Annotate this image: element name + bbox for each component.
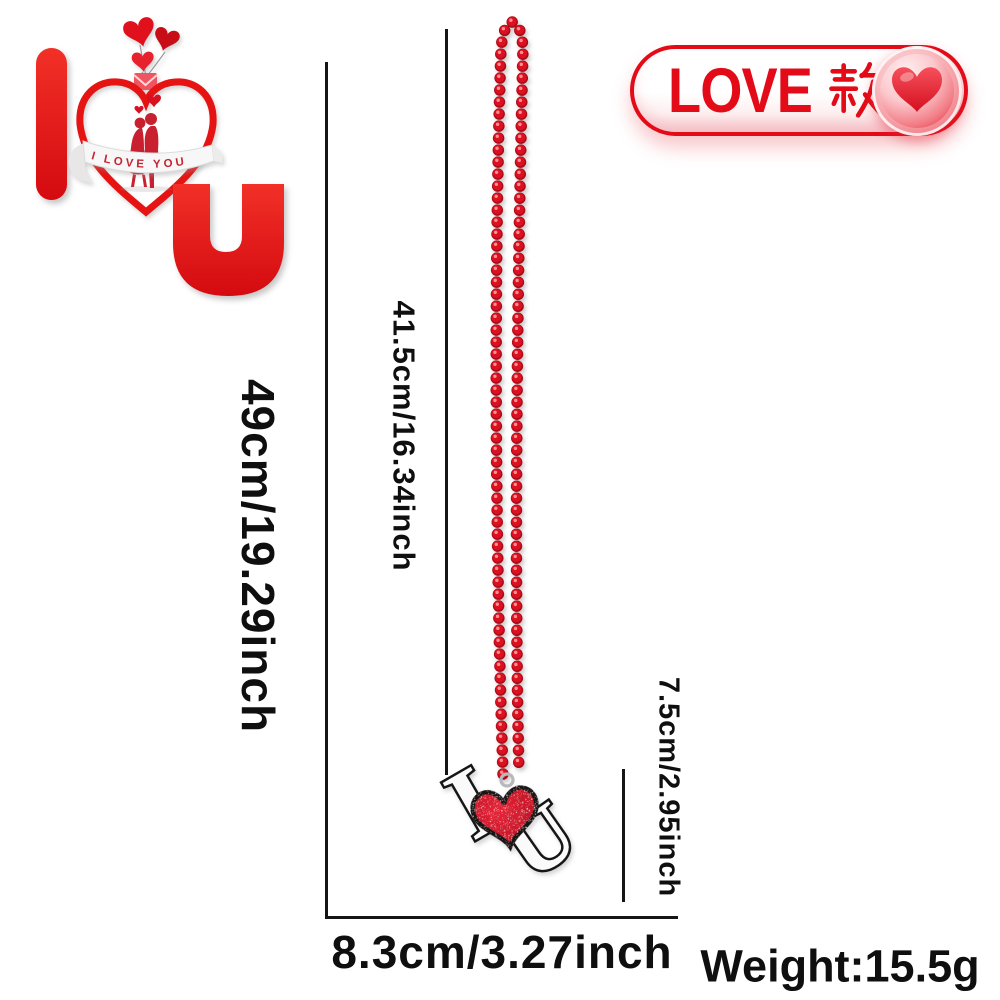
pendant-width-label: 8.3cm/3.27inch: [331, 929, 672, 975]
badge-label-latin: LOVE: [668, 55, 812, 127]
dimension-line-pendant-width: [325, 916, 678, 919]
weight-label: Weight:15.5g: [700, 944, 979, 989]
style-badge: LOVE 款 LOVE款: [630, 45, 968, 136]
badge-label: LOVE 款 LOVE款: [668, 49, 886, 132]
necklace: I U: [0, 0, 1000, 1000]
chain-drop-label: 41.5cm/16.34inch: [389, 300, 420, 571]
pendant-height-label: 7.5cm/2.95inch: [654, 677, 683, 897]
heart-icon: [890, 66, 944, 116]
dimension-line-total-length: [325, 62, 328, 918]
dimension-line-pendant-height: [622, 769, 625, 902]
heart-button-icon: [872, 46, 962, 136]
bead-chain: [495, 20, 523, 774]
total-length-label: 49cm/19.29inch: [235, 379, 281, 733]
product-dimension-image: I: [0, 0, 1000, 1000]
dimension-line-chain-drop: [445, 29, 448, 775]
pendant: I U: [428, 745, 593, 898]
